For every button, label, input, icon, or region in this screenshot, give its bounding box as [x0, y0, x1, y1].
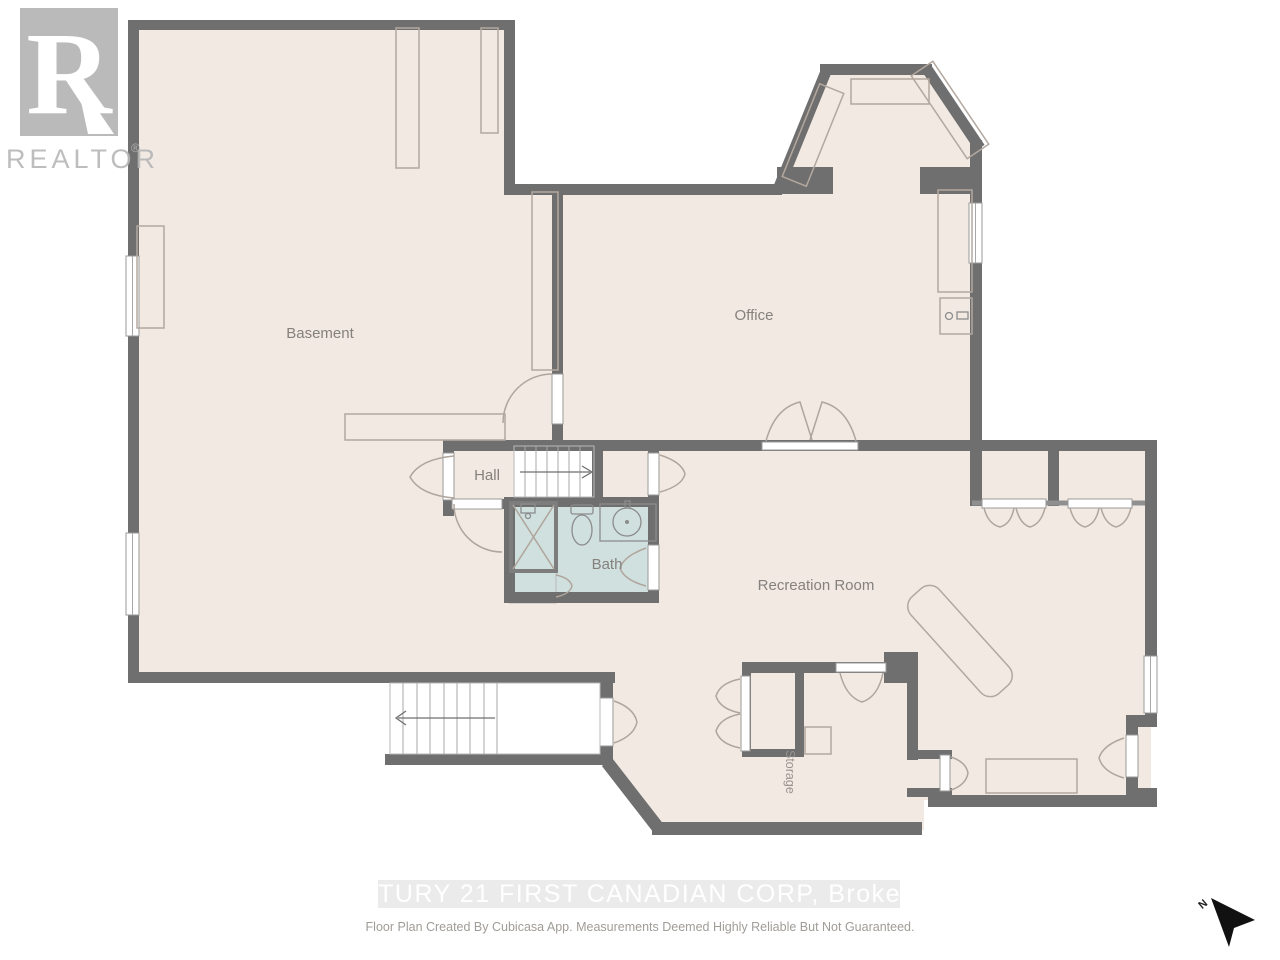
- north-arrow-icon: [1211, 898, 1255, 947]
- stairs-down-icon: [390, 683, 600, 754]
- room-label-office: Office: [735, 307, 774, 324]
- room-label-hall: Hall: [474, 467, 500, 484]
- room-label-basement: Basement: [286, 325, 354, 342]
- realtor-logo-reg: ®: [131, 141, 140, 155]
- watermark: CENTURY 21 FIRST CANADIAN CORP, Brokerag…: [321, 880, 957, 908]
- window-icon: [1144, 656, 1157, 713]
- disclaimer: Floor Plan Created By Cubicasa App. Meas…: [366, 920, 915, 934]
- room-label-storage: Storage: [783, 750, 797, 794]
- footer: CENTURY 21 FIRST CANADIAN CORP, Brokerag…: [321, 880, 957, 934]
- room-label-recreation: Recreation Room: [758, 577, 875, 594]
- north-label: N: [1196, 897, 1210, 911]
- window-icon: [969, 203, 982, 263]
- north-arrow: N: [1196, 897, 1255, 947]
- room-label-bath: Bath: [592, 556, 623, 573]
- window-icon: [126, 533, 139, 615]
- floor-plan-svg: Basement Office Hall Bath Recreation Roo…: [0, 0, 1280, 960]
- floor-plan-page: Basement Office Hall Bath Recreation Roo…: [0, 0, 1280, 960]
- floor-fills: [133, 25, 1151, 830]
